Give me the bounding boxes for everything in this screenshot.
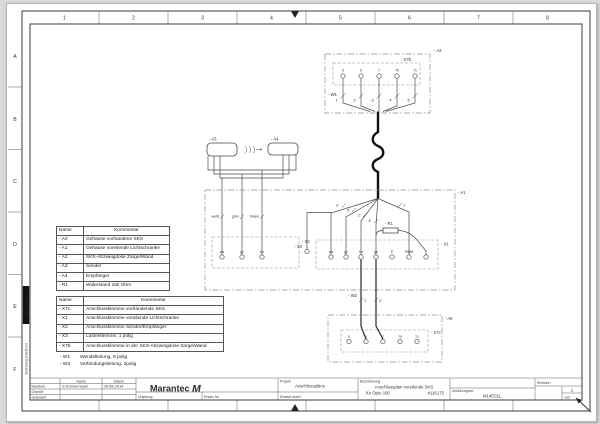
x1-terminals: wsgnbngePPWM	[329, 250, 428, 259]
wire-number: 1'	[403, 204, 406, 208]
fold-mark-top	[291, 11, 299, 18]
w2-label: - W2	[348, 293, 358, 298]
terminal-label: gn	[240, 250, 244, 254]
wire-number: 2'	[379, 299, 382, 303]
bezeichnung-label: Bezeichnung	[360, 379, 380, 383]
terminal	[415, 339, 419, 343]
cable-note-row: - W2Verbindungsleitung, 2polig	[60, 362, 136, 367]
wire-number: 3'	[336, 204, 339, 208]
component-name: - A2	[57, 254, 84, 263]
wire-number: 4'	[390, 99, 393, 103]
component-comment: Widerstand 15k Ohm	[84, 282, 170, 291]
terminal-label: 5	[342, 69, 344, 73]
brand-logo-text: Marantec	[150, 384, 190, 394]
x1-label: - X1	[441, 242, 449, 247]
terminal	[381, 339, 385, 343]
x2-terminal-box	[212, 237, 299, 268]
terminal-label: 71	[415, 335, 419, 339]
cable-note-row: - W1Wendelleitung, 5 polig	[60, 355, 136, 360]
terminal-label: P	[391, 250, 394, 254]
x7b-label: - X7b	[401, 57, 412, 62]
table-row: - A2SKS-Abzweigdose Zarge/Wand	[57, 254, 170, 263]
terminal-label: 70	[395, 69, 399, 73]
terminal	[260, 255, 264, 259]
x3-label: - X3	[294, 244, 302, 249]
wire-number: 2'	[354, 99, 357, 103]
w1-label: - W1	[328, 92, 338, 97]
terminal-label: 6	[365, 335, 367, 339]
zeichnungsnr-value: M14E011	[483, 394, 502, 399]
a1-label: - A1	[458, 190, 466, 195]
component-comment: Gehäuse voreilende Lichtschranke	[84, 245, 170, 254]
bezeichnung-number: #116175	[428, 391, 445, 396]
terminal	[359, 74, 363, 78]
note-comment: Wendelleitung, 5 polig	[80, 355, 127, 360]
column-number: 8	[546, 16, 549, 22]
side-badge-text: Engineering Base	[25, 293, 29, 318]
x7b-terminals: 5677071	[341, 69, 417, 79]
a0-label: - A0	[445, 316, 453, 321]
component-comment: Anschlussklemme vorhandende SKS	[84, 306, 224, 315]
terminal	[220, 255, 224, 259]
terminal	[341, 74, 345, 78]
table-row: - X1Anschlussklemme voreilende Lichtschr…	[57, 315, 224, 324]
x7c-terminals: 5677071	[347, 335, 419, 344]
name-column-header: Name	[76, 379, 85, 383]
row-letter: F	[13, 367, 16, 373]
component-name: - X2	[57, 324, 84, 333]
component-comment: SKS-Abzweigdose Zarge/Wand	[84, 254, 170, 263]
component-comment: Empfänger	[84, 272, 170, 281]
note-name: - W1	[60, 355, 80, 360]
terminal	[347, 339, 351, 343]
terminal-label: 71	[413, 69, 417, 73]
wire-color-label: grün	[232, 215, 239, 219]
column-number: 5	[339, 16, 342, 22]
note-name: - W2	[60, 362, 80, 367]
note-comment: Verbindungsleitung, 2polig	[80, 362, 136, 367]
terminal	[413, 74, 417, 78]
terminal	[359, 255, 363, 259]
brand-logo-mark-icon: M	[192, 383, 201, 395]
wire-number: 3'	[372, 99, 375, 103]
wire-color-label: braun	[250, 215, 259, 219]
table-row: - A4Empfänger	[57, 272, 170, 281]
terminal	[374, 255, 378, 259]
ersetzt-durch-label: Ersetzt durch	[280, 395, 301, 399]
x2-terminals: wsgnbn	[220, 250, 264, 259]
a4-receiver	[268, 143, 298, 155]
row-letter: E	[13, 304, 17, 310]
r1-connection	[376, 231, 426, 255]
bearbeit-label: Bearbeit.	[32, 385, 46, 389]
terminal	[329, 255, 333, 259]
geprueft-label: Geprüft	[32, 390, 44, 394]
wire-color-label: weiß	[211, 215, 219, 219]
x1-terminal-box	[316, 240, 438, 269]
light-beam-icon	[245, 146, 262, 153]
component-name: - X7c	[57, 306, 84, 315]
table-header: Kommentar	[84, 227, 170, 236]
component-name: - A4	[57, 272, 84, 281]
frame-row-letters: ABCDEF	[13, 54, 17, 373]
terminal-label: 7	[382, 335, 384, 339]
x2-label: - X2	[302, 239, 310, 244]
column-number: 3	[201, 16, 204, 22]
sender-receiver-bus	[208, 155, 296, 178]
zeichnungsnr-label: Zeichnungsnr:	[452, 389, 474, 393]
terminal-label: bn	[359, 250, 363, 254]
bearbeit-name: S.Künnemeyer	[62, 384, 89, 389]
component-comment: Anschlussklemme in der SKS-Abzweigdose Z…	[84, 342, 224, 351]
bezeichnung-line2: für Opto 180	[366, 391, 390, 396]
terminal-label: ws	[220, 250, 224, 254]
drawing-page: 12345678 ABCDEF Engineering Base Zeichnu…	[0, 0, 600, 424]
component-name: - X3	[57, 333, 84, 342]
table-header-row: NameKommentar	[57, 227, 170, 236]
component-name: - A3	[57, 263, 84, 272]
terminals-table: NameKommentar- X7cAnschlussklemme vorhan…	[56, 296, 224, 352]
a3-label: - A3	[209, 137, 217, 142]
component-comment: Anschlussklemme Sender/Empfänger	[84, 324, 224, 333]
terminal	[364, 339, 368, 343]
sheet-number: 1	[571, 387, 574, 392]
row-letter: B	[13, 117, 17, 123]
terminal	[390, 255, 394, 259]
x7b-terminal-box	[333, 63, 420, 85]
wire-number: 5'	[408, 99, 411, 103]
wire-number: 2'	[358, 214, 361, 218]
w1-wires	[343, 78, 415, 111]
a4-label: - A4	[271, 137, 279, 142]
w2-wire-numbers: 1'2'	[364, 299, 382, 303]
component-comment: Sender	[84, 263, 170, 272]
terminal-label: 7	[378, 69, 380, 73]
terminal-label: bn	[260, 250, 264, 254]
wire-number: 5'	[347, 209, 350, 213]
row-dividers	[8, 87, 22, 337]
component-comment: Anschlussklemme voreilende Lichtschranke	[84, 315, 224, 324]
terminal-label: 70	[398, 335, 402, 339]
table-row: - A3Sender	[57, 263, 170, 272]
table-header-row: NameKommentar	[57, 297, 224, 306]
terminal	[377, 74, 381, 78]
component-name: - A1	[57, 245, 84, 254]
row-letter: A	[13, 54, 17, 60]
component-name: - X7b	[57, 342, 84, 351]
terminal	[240, 255, 244, 259]
a2-label: - A2	[434, 48, 442, 53]
x3-luesterklemme	[305, 249, 309, 253]
terminal-label: gn	[344, 250, 348, 254]
bezeichnung-line1: Anschlussplan voreilende SKS	[375, 385, 434, 390]
terminal-label: PWM	[405, 250, 413, 254]
ersatz-fuer-label: Ersatz für	[204, 395, 220, 399]
table-header: Kommentar	[84, 297, 224, 306]
column-number: 2	[132, 16, 135, 22]
terminal-label: 5	[348, 335, 350, 339]
column-number: 1	[63, 16, 66, 22]
terminal-label: ge	[374, 250, 378, 254]
row-letter: C	[13, 179, 17, 185]
table-row: - X7bAnschlussklemme in der SKS-Abzweigd…	[57, 342, 224, 351]
w1-wire-numbers: 1'2'3'4'5'	[336, 99, 411, 103]
column-number: 4	[270, 16, 273, 22]
terminal	[398, 339, 402, 343]
table-row: - X3Lüsterklemme, 1 polig	[57, 333, 224, 342]
components-table: NameKommentar- A0Gehäuse vorhandene SKS-…	[56, 226, 170, 291]
row-letter: D	[13, 242, 17, 248]
x2-drop-wires	[222, 170, 262, 255]
r1-resistor	[383, 228, 398, 233]
component-comment: Gehäuse vorhandene SKS	[84, 236, 170, 245]
column-number: 7	[477, 16, 480, 22]
cable-notes: - W1Wendelleitung, 5 polig- W2Verbindung…	[60, 355, 136, 369]
table-row: - R1Widerstand 15k Ohm	[57, 282, 170, 291]
revision-label: Revision	[537, 381, 550, 385]
date-column-header: Datum	[114, 379, 124, 383]
terminal-label: ws	[329, 250, 333, 254]
terminal-label: 6	[360, 69, 362, 73]
wire-number: 1'	[336, 99, 339, 103]
fold-mark-bottom	[291, 404, 299, 411]
geaendert-label: Geändert	[32, 396, 47, 400]
terminal	[395, 74, 399, 78]
projekt-value: Anschlusspläne	[295, 384, 326, 389]
table-header: Name	[57, 227, 84, 236]
x3-wire	[307, 213, 331, 250]
ursprung-label: Ursprung	[138, 395, 152, 399]
side-note-text: Zeichnung erstellt mit	[25, 343, 29, 374]
w2-wire-ticks	[359, 298, 378, 302]
projekt-label: Projekt	[280, 379, 291, 383]
table-row: - X7cAnschlussklemme vorhandende SKS	[57, 306, 224, 315]
component-name: - X1	[57, 315, 84, 324]
a3-sender	[207, 143, 237, 156]
component-name: - A0	[57, 236, 84, 245]
terminal	[424, 255, 428, 259]
von-label: von	[565, 395, 571, 399]
wire-number: 1'	[364, 299, 367, 303]
x2-wire-color-labels: weißgrünbraun	[211, 215, 259, 219]
component-name: - R1	[57, 282, 84, 291]
component-comment: Lüsterklemme, 1 polig	[84, 333, 224, 342]
table-row: - X2Anschlussklemme Sender/Empfänger	[57, 324, 224, 333]
table-header: Name	[57, 297, 84, 306]
terminal	[407, 255, 411, 259]
r1-label: - R1	[385, 221, 394, 226]
terminal	[344, 255, 348, 259]
w1-coiled-cable	[373, 112, 384, 199]
x7c-label: - X7c	[431, 330, 441, 335]
table-row: - A0Gehäuse vorhandene SKS	[57, 236, 170, 245]
bearbeit-date: 28.08.2014	[104, 384, 125, 389]
wire-number: 4'	[369, 219, 372, 223]
a0-housing-box	[328, 315, 442, 362]
column-number: 6	[408, 16, 411, 22]
table-row: - A1Gehäuse voreilende Lichtschranke	[57, 245, 170, 254]
